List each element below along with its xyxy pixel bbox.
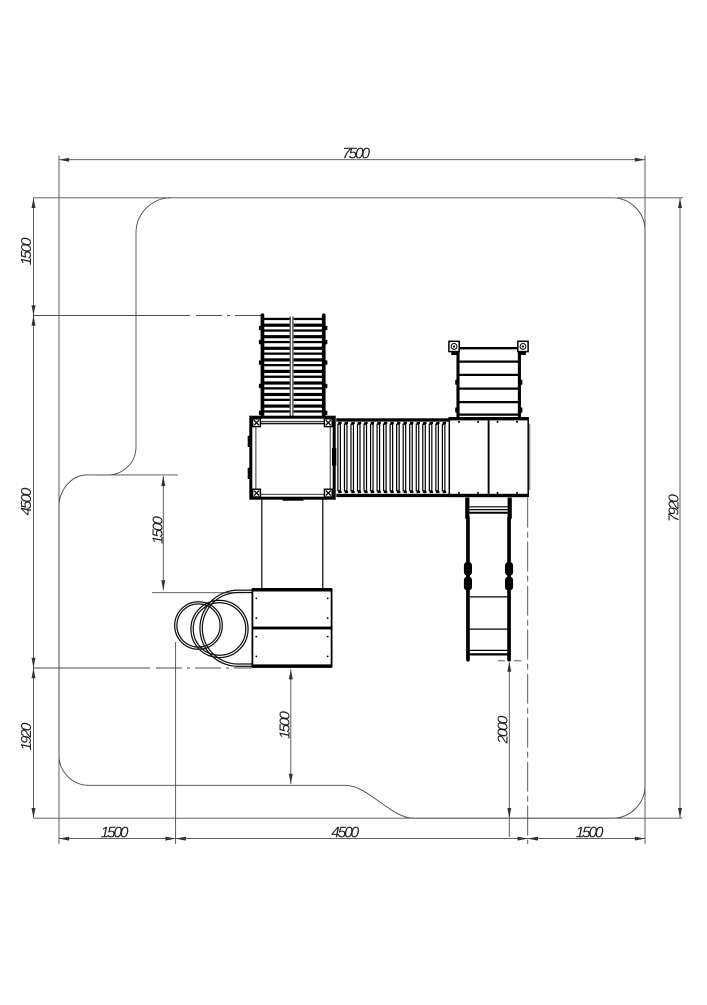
svg-text:1500: 1500 xyxy=(576,824,604,841)
svg-text:4500: 4500 xyxy=(331,824,359,841)
svg-text:7500: 7500 xyxy=(342,145,370,162)
svg-text:4500: 4500 xyxy=(18,487,35,515)
svg-text:1500: 1500 xyxy=(150,516,167,544)
svg-text:7920: 7920 xyxy=(666,494,683,522)
svg-text:1920: 1920 xyxy=(18,722,35,750)
svg-text:1500: 1500 xyxy=(277,711,294,739)
svg-text:1500: 1500 xyxy=(18,237,35,265)
svg-text:2000: 2000 xyxy=(495,715,512,744)
svg-text:1500: 1500 xyxy=(101,824,129,841)
